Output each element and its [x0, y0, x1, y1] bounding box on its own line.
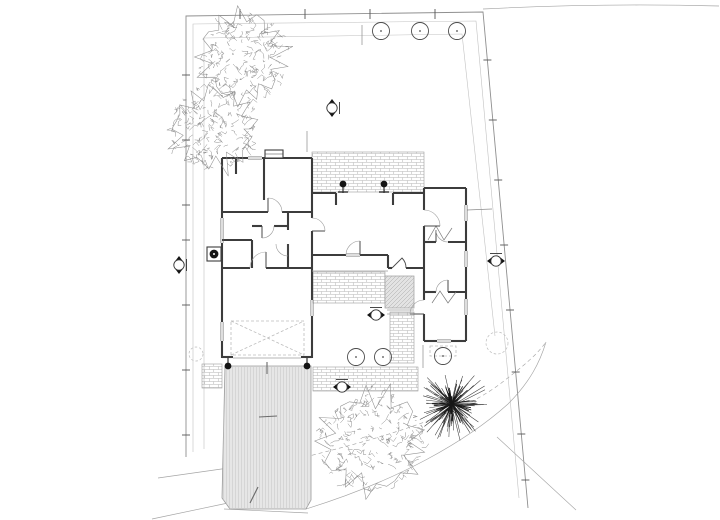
shrub-center-dot: [355, 356, 357, 358]
dashed-circle: [486, 332, 508, 354]
door-swing-arc: [346, 241, 360, 255]
door-swing-arc: [424, 210, 440, 226]
door-swing-arc: [436, 280, 448, 292]
shrub-center-dot: [380, 30, 382, 32]
guide-line: [467, 209, 492, 210]
spot-marker-circle: [337, 382, 347, 392]
spot-elevation-marker: [174, 256, 187, 274]
road-edge-line: [152, 503, 228, 519]
road-edge-line: [483, 5, 719, 9]
door-swing-arc: [276, 244, 288, 256]
spot-marker-circle: [371, 310, 381, 320]
spot-elevation-marker: [487, 254, 505, 267]
shrub-center-dot: [442, 355, 444, 357]
door-swing-arc: [262, 226, 274, 238]
tree-outline: [195, 6, 293, 107]
spot-marker-circle: [174, 260, 184, 270]
brick-patio: [312, 152, 424, 192]
driveway-post: [225, 363, 232, 370]
tree-scribble: [316, 384, 429, 492]
brick-patio: [313, 272, 385, 303]
porch-column: [340, 181, 347, 188]
brick-patio: [390, 312, 414, 363]
driveway-post: [304, 363, 311, 370]
dashed-circle: [189, 347, 203, 361]
layer-hardscape: [202, 152, 456, 509]
spot-marker-circle: [327, 103, 337, 113]
fixture-zigzag: [428, 226, 452, 240]
spot-elevation-marker: [327, 99, 340, 117]
layer-symbols: [174, 99, 505, 392]
door-swing-arc: [268, 198, 282, 212]
site-plan: [0, 0, 720, 520]
tree-scribble: [167, 84, 257, 169]
tree-scribble: [199, 13, 289, 104]
entry-door: [392, 258, 406, 268]
porch-column: [381, 181, 388, 188]
road-edge-line: [497, 437, 576, 510]
shrub-center-dot: [382, 356, 384, 358]
road-edge-line: [224, 509, 308, 513]
entry-deck-hatch: [385, 276, 414, 308]
driveway-hatch: [222, 366, 311, 509]
spot-marker-circle: [491, 256, 501, 266]
tree-outline: [315, 384, 425, 500]
shrub-center-dot: [419, 30, 421, 32]
spot-elevation-marker: [367, 308, 385, 321]
ac-unit-hub: [213, 253, 215, 255]
door-swing-arc: [312, 218, 325, 231]
drawing-canvas: [0, 0, 720, 520]
shrub-center-dot: [456, 30, 458, 32]
brick-patio: [202, 364, 222, 388]
